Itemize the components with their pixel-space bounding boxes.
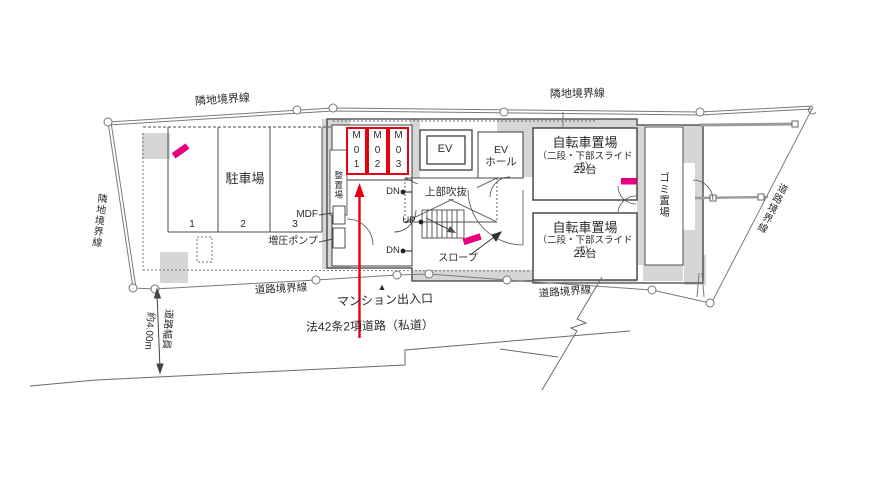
site-plan: M 0 1 M 0 2 M 0 3 隣地境界線 隣地境界線 隣地境界線 道路境界…: [0, 0, 886, 489]
ev-label: EV: [432, 143, 458, 156]
dn-top-label: DN: [382, 187, 404, 198]
bicycle-room1-title: 自転車置場: [545, 136, 625, 151]
mdf-label: MDF: [288, 209, 318, 221]
void-label: 上部吹抜: [413, 186, 479, 198]
plan-linework: [0, 0, 886, 489]
bicycle-room1-count: 22台: [565, 164, 605, 177]
slope-label: スロープ: [430, 253, 486, 265]
pump-label: 増圧ポンプ: [258, 236, 318, 248]
parking-stall-1: 1: [184, 219, 200, 231]
boundary-label-adjacent-top-right: 隣地境界線: [535, 87, 620, 101]
bicycle-room2-title: 自転車置場: [545, 221, 625, 236]
stairs: [422, 210, 464, 238]
parking-stall-2: 2: [235, 219, 251, 231]
entrance-marker: ▲: [374, 282, 390, 292]
parking-label: 駐車場: [206, 172, 284, 187]
bike-space-m01: M 0 1: [346, 127, 367, 175]
garbage-label: ゴミ置場: [658, 162, 670, 228]
bicycle-room2-count: 22台: [565, 248, 605, 261]
bike-space-m03: M 0 3: [388, 127, 409, 175]
dn-bottom-label: DN: [382, 246, 404, 257]
bike-space-m02: M 0 2: [367, 127, 388, 175]
storage-label: 整置場: [333, 158, 343, 213]
up-label: UP: [398, 216, 420, 227]
parking-stall-3: 3: [287, 219, 303, 231]
road-type-label: 法42条2項道路（私道）: [300, 319, 440, 335]
ev-hall-label: EV ホール: [481, 144, 521, 168]
